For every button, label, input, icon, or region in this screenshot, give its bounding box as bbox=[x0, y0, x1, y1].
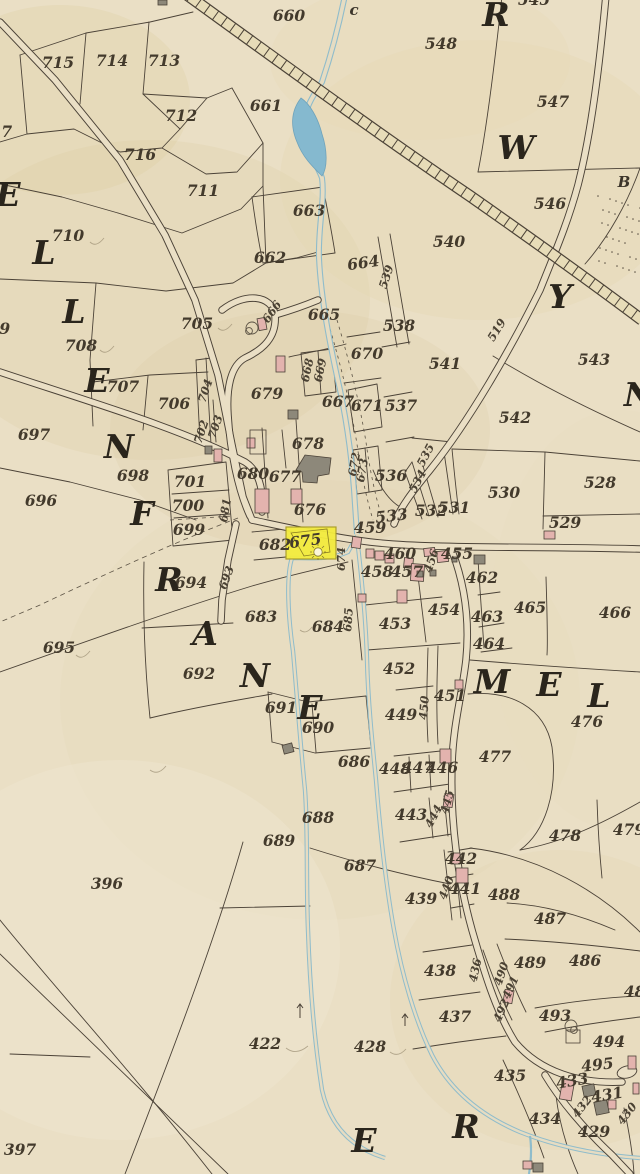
parcel-number: 536 bbox=[375, 466, 408, 485]
parcel-number: 452 bbox=[383, 659, 416, 678]
parcel-number: 677 bbox=[269, 467, 302, 486]
parcel-number: 537 bbox=[385, 396, 418, 415]
place-name-letter: L bbox=[31, 233, 55, 272]
place-name-letter: L bbox=[586, 676, 610, 715]
parcel-number: 679 bbox=[251, 384, 284, 403]
parcel-number: 530 bbox=[488, 483, 521, 502]
parcel-number: 705 bbox=[181, 314, 213, 333]
parcel-number: 548 bbox=[425, 34, 458, 53]
place-name-letter: Y bbox=[548, 277, 575, 316]
parcel-number: 442 bbox=[445, 849, 478, 868]
parcel-number: 465 bbox=[514, 598, 546, 617]
place-name-letter: N bbox=[239, 656, 272, 695]
parcel-number: 670 bbox=[351, 344, 384, 363]
parcel-number: 438 bbox=[424, 961, 457, 980]
place-name-letter: R bbox=[154, 560, 182, 599]
parcel-number: 686 bbox=[338, 752, 371, 771]
parcel-number: 683 bbox=[245, 607, 278, 626]
parcel-number-rotated: 685 bbox=[340, 607, 356, 632]
parcel-number: 716 bbox=[124, 145, 157, 164]
building-pink bbox=[214, 449, 222, 462]
parcel-number: 396 bbox=[91, 874, 124, 893]
parcel-number: 494 bbox=[593, 1032, 625, 1051]
parcel-number: 453 bbox=[379, 614, 412, 633]
building-pink bbox=[255, 489, 269, 513]
building-pink bbox=[351, 536, 361, 548]
building-pink bbox=[276, 356, 285, 372]
parcel-number: 661 bbox=[250, 96, 282, 115]
building-pink bbox=[523, 1161, 532, 1169]
building-pink bbox=[544, 531, 555, 539]
building-grey bbox=[288, 410, 298, 419]
building-pink bbox=[633, 1083, 639, 1094]
building-pink bbox=[358, 594, 366, 602]
place-name-letter: R bbox=[451, 1107, 479, 1146]
place-name-letter: M bbox=[473, 662, 512, 701]
parcel-number: 538 bbox=[383, 316, 416, 335]
parcel-number: 684 bbox=[312, 617, 344, 636]
parcel-number: 528 bbox=[584, 473, 617, 492]
parcel-number: 699 bbox=[173, 520, 206, 539]
parcel-number: 682 bbox=[259, 535, 292, 554]
parcel-number: 543 bbox=[578, 350, 611, 369]
building-grey bbox=[533, 1163, 543, 1172]
parcel-number: 493 bbox=[539, 1006, 572, 1025]
map-canvas[interactable]: 7157147137127167117107177097087057077066… bbox=[0, 0, 640, 1174]
cadastral-map-page: 7157147137127167117107177097087057077066… bbox=[0, 0, 640, 1174]
parcel-number: 459 bbox=[354, 518, 387, 537]
parcel-number: 689 bbox=[263, 831, 296, 850]
parcel-number: 542 bbox=[499, 408, 532, 427]
building-grey bbox=[205, 446, 212, 454]
parcel-number: 446 bbox=[426, 758, 459, 777]
parcel-number: 466 bbox=[599, 603, 632, 622]
parcel-number: 712 bbox=[165, 106, 198, 125]
parcel-number: 531 bbox=[438, 498, 470, 517]
parcel-number: 460 bbox=[384, 544, 417, 563]
parcel-number: 680 bbox=[237, 464, 270, 483]
parcel-number: 692 bbox=[183, 664, 216, 683]
parcel-number: 695 bbox=[43, 638, 75, 657]
parcel-number: 435 bbox=[494, 1066, 526, 1085]
parcel-number: 451 bbox=[434, 686, 466, 705]
parcel-number: 697 bbox=[18, 425, 51, 444]
parcel-number-rotated: 674 bbox=[334, 547, 348, 571]
parcel-number: 663 bbox=[293, 201, 326, 220]
parcel-number: 449 bbox=[385, 705, 418, 724]
parcel-number: 665 bbox=[308, 305, 340, 324]
parcel-number: 455 bbox=[441, 544, 473, 563]
parcel-number: 545 bbox=[518, 0, 550, 9]
parcel-number: 711 bbox=[187, 181, 219, 200]
parcel-number: 715 bbox=[42, 53, 74, 72]
building-pink bbox=[375, 551, 384, 560]
place-name-letter: L bbox=[61, 292, 85, 331]
parcel-number: 479 bbox=[613, 820, 640, 839]
parcel-number: 428 bbox=[354, 1037, 387, 1056]
place-name-letter: E bbox=[296, 688, 323, 727]
place-name-letter: F bbox=[129, 494, 156, 533]
parcel-number: 700 bbox=[172, 496, 205, 515]
place-name-letter: N bbox=[623, 375, 640, 414]
building-pink bbox=[628, 1056, 636, 1069]
place-name-letter: E bbox=[0, 175, 21, 214]
parcel-number: 708 bbox=[65, 336, 98, 355]
parcel-number: 457 bbox=[391, 562, 424, 581]
parcel-number: 486 bbox=[624, 982, 640, 1001]
place-name-letter: E bbox=[350, 1121, 377, 1160]
parcel-number: 477 bbox=[479, 747, 512, 766]
parcel-number: 678 bbox=[292, 434, 325, 453]
parcel-number: 701 bbox=[174, 472, 206, 491]
parcel-number: 540 bbox=[433, 232, 466, 251]
parcel-number: 698 bbox=[117, 466, 150, 485]
parcel-number: 462 bbox=[466, 568, 499, 587]
building-pink bbox=[247, 438, 255, 448]
parcel-number: 687 bbox=[344, 856, 377, 875]
parcel-number-rotated: 450 bbox=[416, 695, 432, 720]
place-name-letter: E bbox=[535, 665, 562, 704]
parcel-number: 454 bbox=[428, 600, 460, 619]
parcel-number: 529 bbox=[549, 513, 582, 532]
parcel-number: 707 bbox=[107, 377, 140, 396]
parcel-number: 717 bbox=[0, 122, 12, 141]
parcel-number: 488 bbox=[488, 885, 521, 904]
parcel-number: 547 bbox=[537, 92, 570, 111]
parcel-number: 478 bbox=[549, 826, 582, 845]
parcel-number: 397 bbox=[4, 1140, 37, 1159]
parcel-number: 486 bbox=[569, 951, 602, 970]
parcel-number: 489 bbox=[514, 953, 547, 972]
building-grey bbox=[158, 0, 167, 5]
building-pink bbox=[397, 590, 407, 603]
parcel-number: 671 bbox=[351, 396, 383, 415]
parcel-number: 434 bbox=[529, 1109, 561, 1128]
parcel-number: 691 bbox=[265, 698, 297, 717]
parcel-number: 662 bbox=[254, 248, 287, 267]
parcel-number: 706 bbox=[158, 394, 191, 413]
parcel-number: 439 bbox=[405, 889, 438, 908]
parcel-number: 710 bbox=[52, 226, 85, 245]
parcel-number: 667 bbox=[322, 392, 355, 411]
parcel-number: 487 bbox=[534, 909, 567, 928]
building-pink bbox=[366, 549, 374, 558]
place-name-letter: N bbox=[103, 427, 136, 466]
place-name-letter: W bbox=[497, 128, 537, 167]
parcel-number: 688 bbox=[302, 808, 335, 827]
parcel-number: 429 bbox=[578, 1122, 611, 1141]
parcel-number: 458 bbox=[361, 562, 394, 581]
parcel-number: 660 bbox=[273, 6, 306, 25]
parcel-number: 676 bbox=[294, 500, 327, 519]
point-marker: B bbox=[617, 173, 631, 191]
parcel-number: 541 bbox=[429, 354, 461, 373]
point-marker: c bbox=[349, 1, 358, 19]
parcel-number: 546 bbox=[534, 194, 567, 213]
parcel-number: 709 bbox=[0, 319, 10, 338]
parcel-number: 464 bbox=[473, 634, 505, 653]
building-grey bbox=[474, 555, 485, 564]
parcel-number: 437 bbox=[439, 1007, 472, 1026]
parcel-number: 463 bbox=[471, 607, 504, 626]
parcel-number: 713 bbox=[148, 51, 181, 70]
place-name-letter: A bbox=[189, 614, 218, 653]
place-name-letter: R bbox=[481, 0, 509, 34]
parcel-number: 422 bbox=[249, 1034, 282, 1053]
place-name-letter: E bbox=[83, 361, 110, 400]
parcel-number: 696 bbox=[25, 491, 58, 510]
parcel-number: 714 bbox=[96, 51, 128, 70]
